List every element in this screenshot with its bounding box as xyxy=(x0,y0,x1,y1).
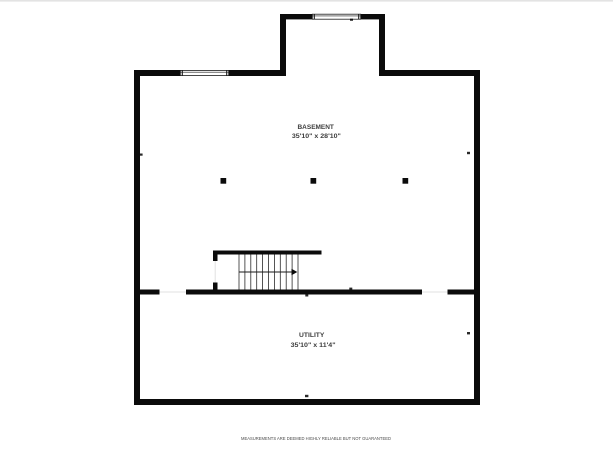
svg-text:35'10" x 28'10": 35'10" x 28'10" xyxy=(292,133,341,140)
svg-text:BASEMENT: BASEMENT xyxy=(298,124,335,131)
svg-text:UTILITY: UTILITY xyxy=(299,332,325,339)
svg-text:MEASUREMENTS ARE DEEMED HIGHLY: MEASUREMENTS ARE DEEMED HIGHLY RELIABLE … xyxy=(241,436,392,441)
svg-text:35'10" x 11'4": 35'10" x 11'4" xyxy=(291,342,336,349)
